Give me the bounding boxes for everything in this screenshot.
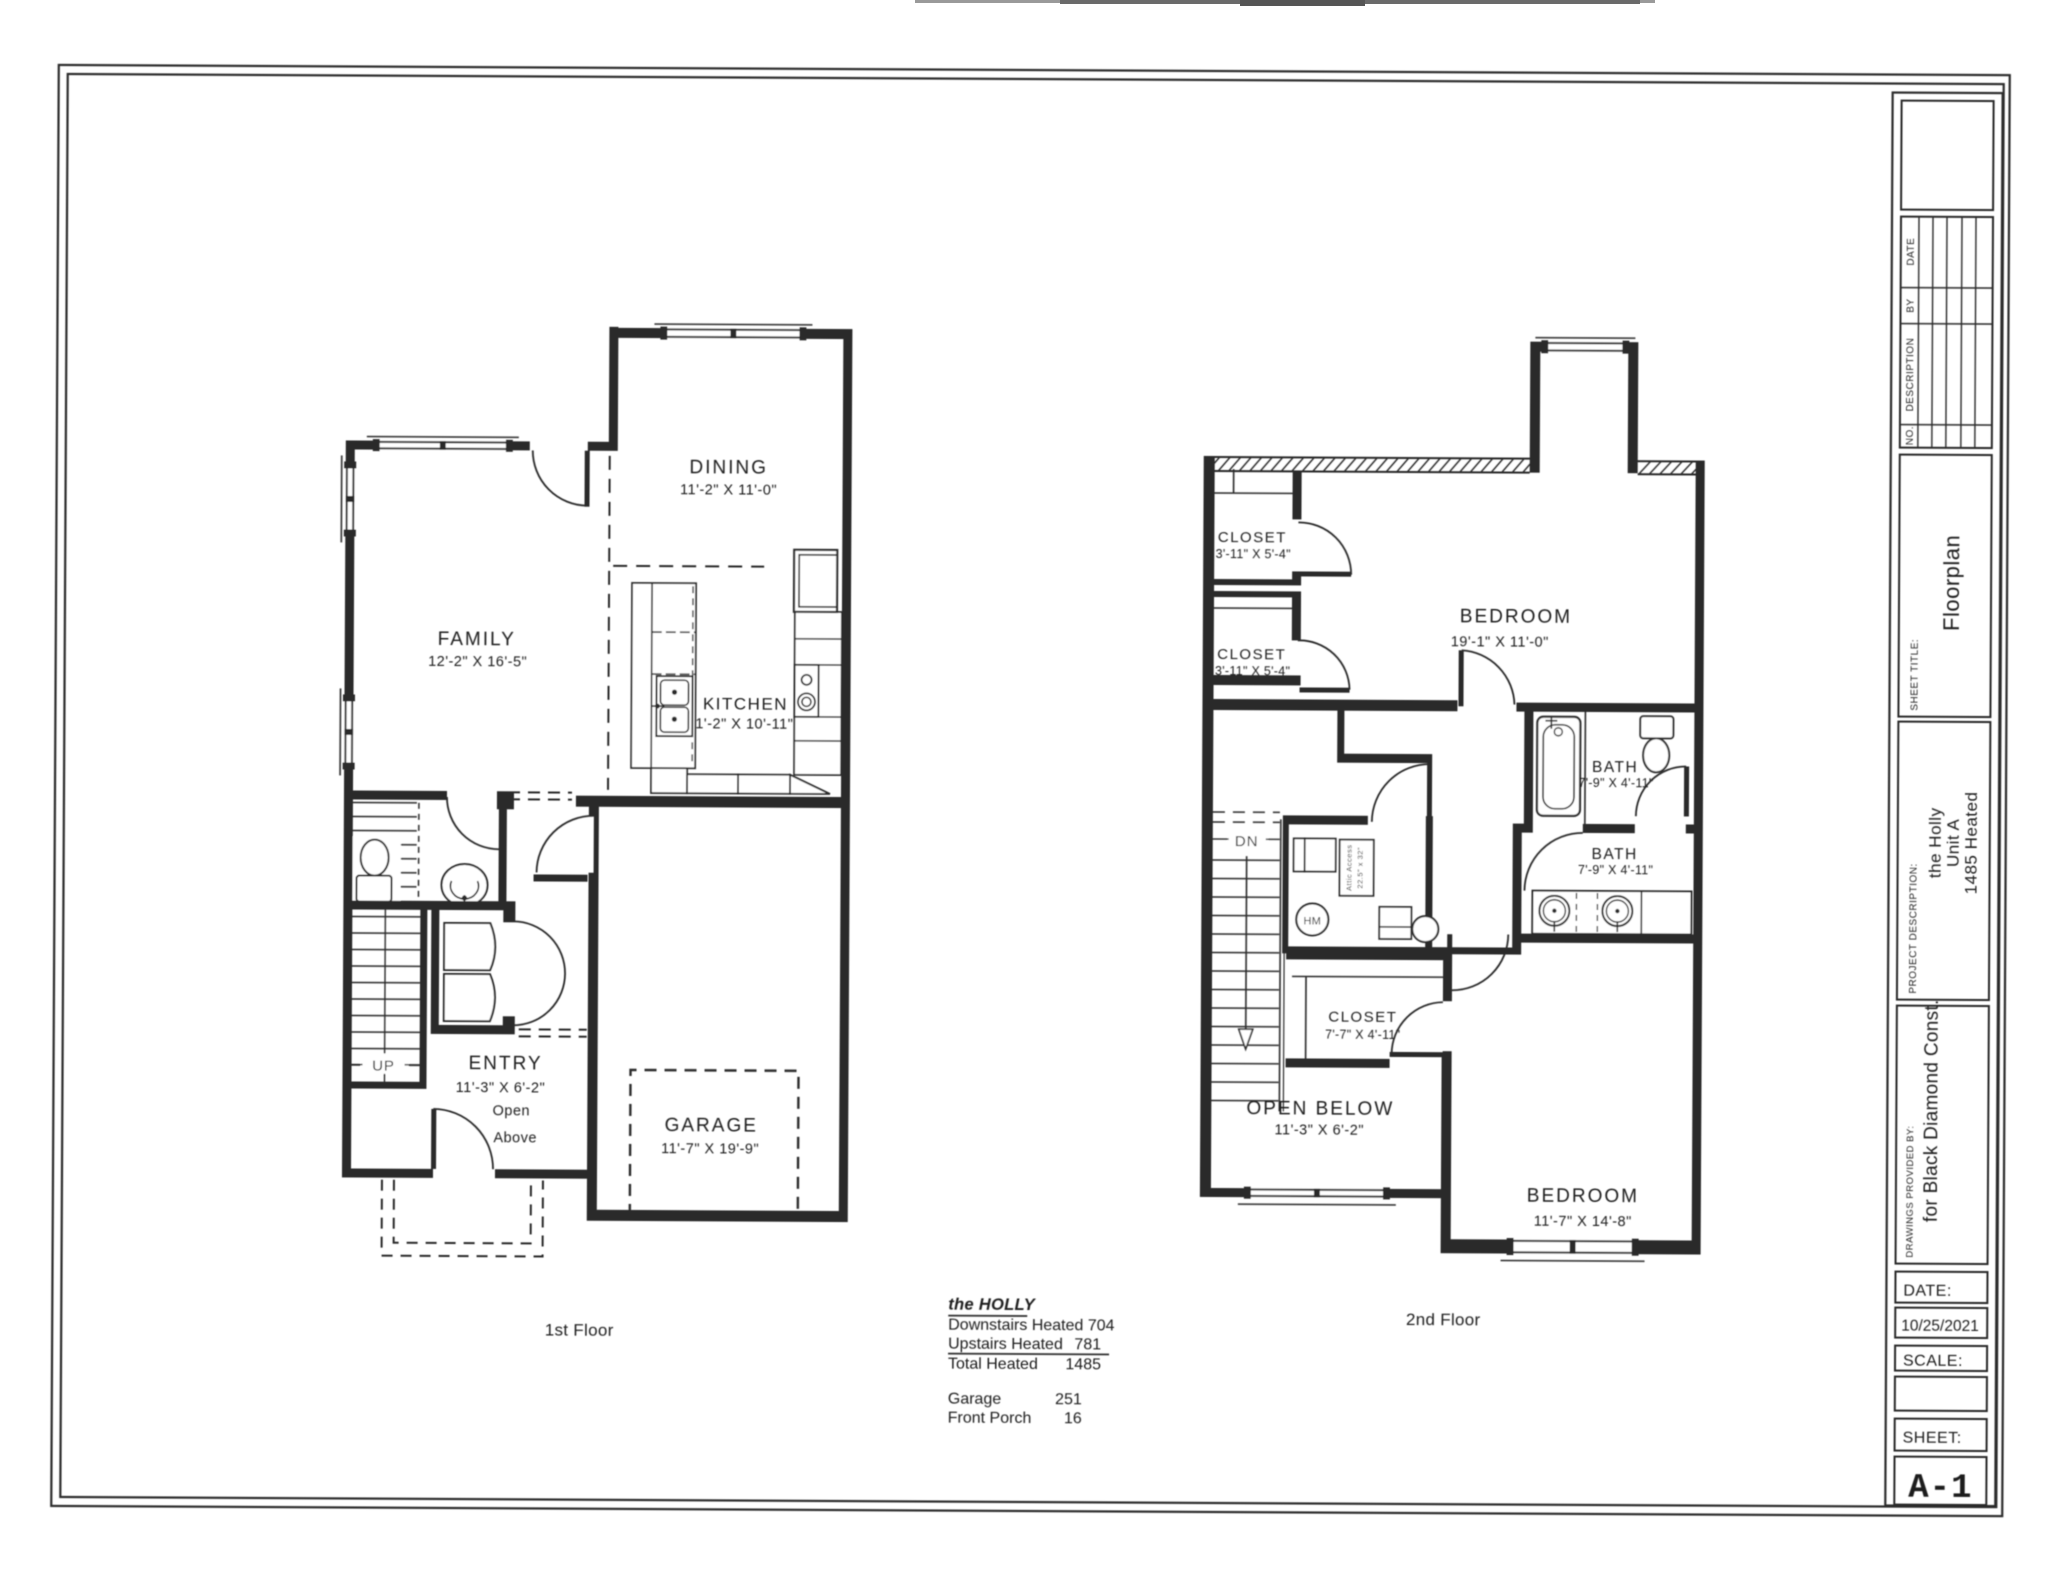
svg-text:NO.: NO. [1905,426,1916,445]
svg-text:KITCHEN: KITCHEN [703,694,788,713]
svg-text:BEDROOM: BEDROOM [1527,1186,1639,1208]
svg-text:1485: 1485 [1065,1356,1101,1373]
svg-text:781: 781 [1074,1336,1101,1353]
svg-text:UP: UP [372,1058,395,1075]
svg-text:BEDROOM: BEDROOM [1460,606,1572,628]
svg-text:10/25/2021: 10/25/2021 [1901,1318,1979,1335]
svg-text:SHEET:: SHEET: [1903,1430,1962,1447]
svg-text:1485 Heated: 1485 Heated [1961,791,1981,894]
svg-text:BATH: BATH [1592,846,1638,863]
svg-text:Above: Above [493,1130,537,1146]
svg-text:Garage: Garage [948,1391,1002,1408]
svg-text:7'-9" X 4'-11": 7'-9" X 4'-11" [1578,776,1653,790]
svg-text:DN: DN [1235,833,1259,850]
svg-text:22.5" x 32": 22.5" x 32" [1355,847,1364,889]
svg-text:Open: Open [493,1103,531,1119]
svg-text:Downstairs Heated 704: Downstairs Heated 704 [948,1317,1115,1335]
svg-text:12'-2" X 16'-5": 12'-2" X 16'-5" [428,654,527,671]
svg-text:3'-11" X 5'-4": 3'-11" X 5'-4" [1216,547,1291,561]
svg-text:DRAWINGS PROVIDED BY:: DRAWINGS PROVIDED BY: [1905,1126,1917,1258]
svg-text:FAMILY: FAMILY [438,629,516,650]
svg-text:Floorplan: Floorplan [1939,535,1965,631]
svg-text:GARAGE: GARAGE [665,1115,758,1136]
svg-text:Upstairs Heated: Upstairs Heated [948,1336,1063,1354]
svg-text:Attic Access: Attic Access [1344,844,1353,890]
svg-text:11'-7" X 19'-9": 11'-7" X 19'-9" [661,1141,759,1158]
svg-text:SCALE:: SCALE: [1903,1353,1963,1370]
svg-text:DESCRIPTION: DESCRIPTION [1905,338,1916,412]
svg-text:PROJECT DESCRIPTION:: PROJECT DESCRIPTION: [1908,863,1920,993]
svg-text:BATH: BATH [1592,759,1638,776]
svg-text:3'-11" X 5'-4": 3'-11" X 5'-4" [1215,664,1290,678]
svg-text:7'-9" X 4'-11": 7'-9" X 4'-11" [1578,863,1653,877]
svg-text:Total Heated: Total Heated [948,1356,1038,1373]
svg-text:CLOSET: CLOSET [1218,529,1287,546]
svg-text:Front Porch: Front Porch [948,1410,1032,1427]
svg-text:2nd Floor: 2nd Floor [1406,1310,1481,1329]
svg-text:CLOSET: CLOSET [1217,646,1286,663]
svg-text:the Holly: the Holly [1926,807,1945,878]
svg-text:1st Floor: 1st Floor [545,1320,614,1339]
svg-text:16: 16 [1064,1410,1082,1427]
svg-text:1'-2" X 10'-11": 1'-2" X 10'-11" [695,716,793,733]
svg-text:ENTRY: ENTRY [468,1053,542,1074]
svg-text:HM: HM [1303,915,1321,927]
svg-text:A-1: A-1 [1908,1470,1972,1508]
svg-text:BY: BY [1906,298,1917,312]
svg-text:11'-3" X 6'-2": 11'-3" X 6'-2" [1274,1122,1364,1138]
svg-text:11'-2" X 11'-0": 11'-2" X 11'-0" [680,482,777,499]
svg-text:11'-7" X 14'-8": 11'-7" X 14'-8" [1534,1214,1632,1231]
svg-text:DATE:: DATE: [1903,1283,1952,1300]
svg-text:CLOSET: CLOSET [1328,1009,1397,1026]
svg-text:7'-7" X 4'-11": 7'-7" X 4'-11" [1325,1028,1400,1042]
svg-text:SHEET TITLE:: SHEET TITLE: [1909,639,1920,711]
svg-text:the HOLLY: the HOLLY [948,1296,1037,1314]
svg-text:251: 251 [1055,1391,1082,1408]
svg-text:19'-1" X 11'-0": 19'-1" X 11'-0" [1451,634,1549,651]
svg-text:11'-3" X 6'-2": 11'-3" X 6'-2" [456,1080,546,1096]
svg-text:Unit A: Unit A [1944,818,1963,867]
svg-text:DINING: DINING [689,457,768,478]
svg-text:OPEN BELOW: OPEN BELOW [1246,1098,1394,1120]
svg-text:DATE: DATE [1906,238,1917,266]
svg-text:for Black Diamond Const.: for Black Diamond Const. [1921,999,1943,1222]
